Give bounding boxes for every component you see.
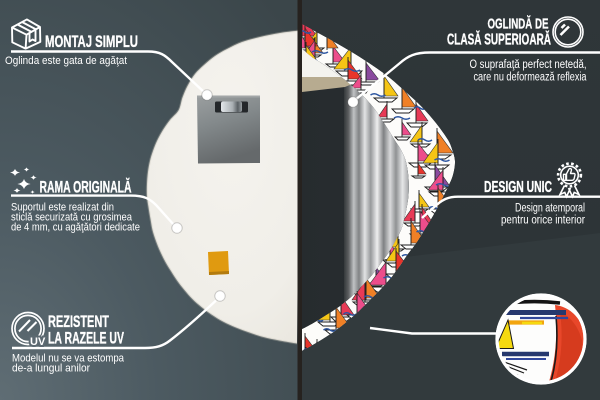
svg-text:Oglinda este gata de agăţat: Oglinda este gata de agăţat bbox=[5, 55, 127, 67]
svg-text:pentru orice interior: pentru orice interior bbox=[501, 214, 585, 226]
svg-text:MONTAJ SIMPLU: MONTAJ SIMPLU bbox=[45, 32, 138, 51]
svg-text:RAMA ORIGINALĂ: RAMA ORIGINALĂ bbox=[40, 178, 132, 197]
svg-text:de 4 mm, cu agăţători dedicate: de 4 mm, cu agăţători dedicate bbox=[11, 222, 140, 234]
svg-text:UV: UV bbox=[30, 336, 46, 348]
svg-text:O suprafaţă perfect netedă,: O suprafaţă perfect netedă, bbox=[470, 59, 587, 71]
svg-text:de-a lungul anilor: de-a lungul anilor bbox=[12, 363, 90, 375]
svg-text:DESIGN UNIC: DESIGN UNIC bbox=[484, 179, 552, 196]
svg-text:Design atemporal: Design atemporal bbox=[515, 203, 585, 215]
svg-text:CLASĂ SUPERIOARĂ: CLASĂ SUPERIOARĂ bbox=[447, 30, 551, 49]
svg-text:OGLINDĂ DE: OGLINDĂ DE bbox=[488, 16, 549, 33]
svg-text:care nu deformează reflexia: care nu deformează reflexia bbox=[474, 71, 587, 83]
svg-text:LA RAZELE UV: LA RAZELE UV bbox=[48, 329, 124, 348]
